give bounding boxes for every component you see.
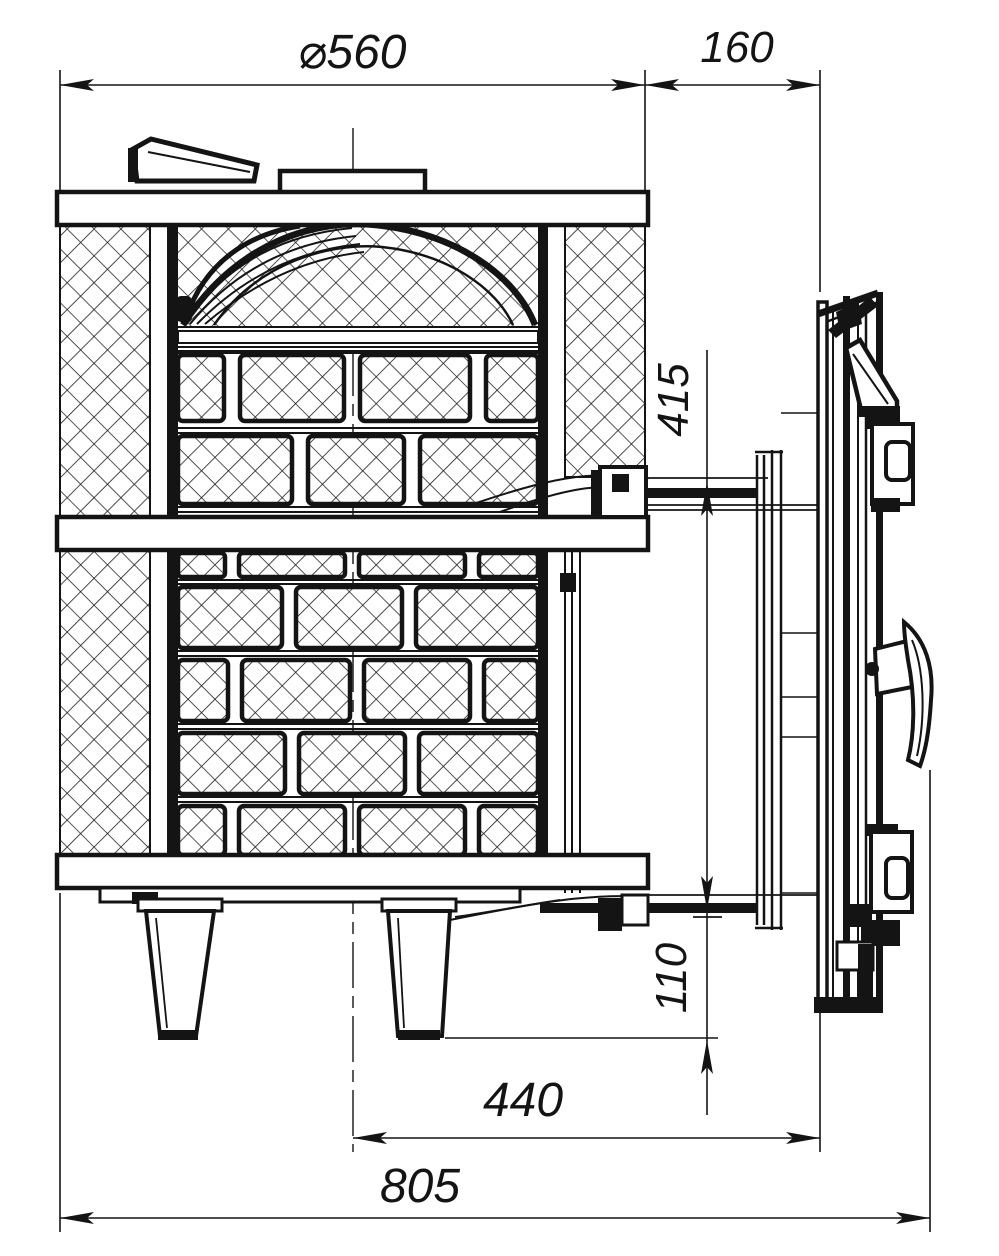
right-insulation-wall — [565, 225, 645, 477]
middle-plate — [57, 517, 648, 550]
handle-pivot — [865, 662, 879, 676]
technical-drawing: ⌀560 160 415 110 440 805 — [0, 0, 999, 1256]
tunnel-top-wall — [648, 488, 757, 498]
dim-label-top-diameter: ⌀560 — [298, 26, 407, 79]
dim-label-axis-to-door: 440 — [483, 1074, 563, 1127]
bottom-plate — [57, 855, 648, 888]
chimney-collar — [280, 171, 425, 193]
dim-label-overall-depth: 805 — [380, 1160, 460, 1213]
stone-shelf — [178, 331, 538, 343]
upper-stone-chamber — [176, 224, 538, 352]
top-plate — [57, 192, 648, 225]
door-front-face — [818, 302, 827, 1002]
door-mid-panel — [843, 296, 850, 1008]
dim-label-opening-height: 415 — [649, 363, 698, 437]
door-bottom-slab — [814, 997, 882, 1013]
upper-latch-keeper — [591, 467, 646, 518]
dim-label-tunnel-length: 160 — [700, 23, 774, 72]
lower-latch-keeper — [598, 895, 648, 931]
upper-latch — [866, 417, 913, 512]
drawing-sheet: ⌀560 160 415 110 440 805 — [0, 0, 999, 1256]
dim-label-bottom-clearance: 110 — [647, 942, 696, 1013]
